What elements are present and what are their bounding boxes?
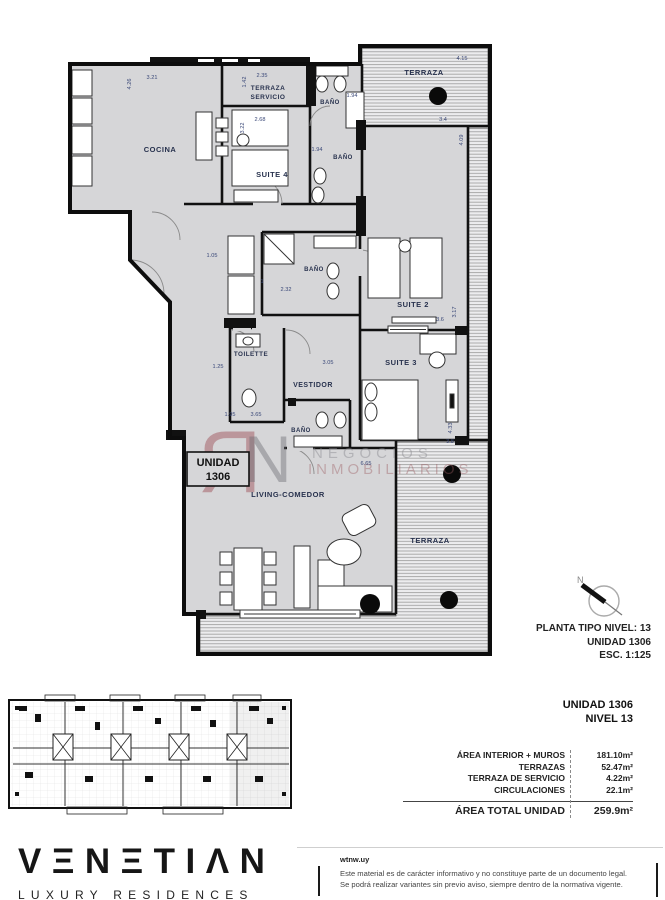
brochure-page: Я N NEGOCIOS INMOBILIARIOS COCINA TERRAZ…	[0, 0, 665, 900]
dimension-label: 2.35	[257, 73, 268, 79]
footer-bar-right	[656, 863, 658, 897]
room-label-cocina: COCINA	[144, 145, 177, 154]
dimension-label: 3.4	[439, 117, 447, 123]
area-row-value: 4.22m²	[577, 773, 633, 785]
dimension-label: 4.26	[127, 79, 133, 90]
area-info-block: UNIDAD 1306 NIVEL 13 ÁREA INTERIOR + MUR…	[403, 698, 633, 818]
footer-divider-line	[297, 847, 663, 848]
dimension-label: 4.09	[459, 135, 465, 146]
dimension-label: 4.15	[457, 56, 468, 62]
total-area-row: ÁREA TOTAL UNIDAD 259.9m²	[403, 801, 633, 818]
dimension-label: 1.05	[207, 253, 218, 259]
dimension-label: 3.65	[251, 412, 262, 418]
dimension-label: 2.68	[255, 117, 266, 123]
room-label-terraza-servicio-1: TERRAZA	[251, 85, 286, 92]
area-row-label: TERRAZA DE SERVICIO	[403, 773, 577, 785]
dimension-label: 3.6	[436, 317, 444, 323]
compass-icon: N	[577, 575, 622, 616]
key-plan	[5, 692, 295, 820]
room-label-suite3: SUITE 3	[385, 358, 417, 367]
dimension-label: 3.8	[446, 439, 454, 445]
info-level: NIVEL 13	[403, 712, 633, 726]
dimension-label: 4.33	[448, 423, 454, 434]
caption-line1: PLANTA TIPO NIVEL: 13	[431, 622, 651, 636]
room-label-suite4: SUITE 4	[256, 170, 288, 179]
room-label-bano-living: BAÑO	[291, 427, 311, 434]
area-row-label: CIRCULACIONES	[403, 785, 577, 797]
unit-box-line2: 1306	[206, 471, 230, 483]
dimension-label: 1.94	[347, 93, 358, 99]
room-label-suite2: SUITE 2	[397, 300, 429, 309]
caption-line2: UNIDAD 1306	[431, 636, 651, 650]
dimension-label: 6.65	[361, 461, 372, 467]
brand-logo-wordmark: VΞNΞTIΛN	[18, 842, 288, 882]
watermark-line1: NEGOCIOS	[312, 445, 433, 462]
dimension-label: 2.32	[281, 287, 292, 293]
table-row: ÁREA INTERIOR + MUROS 181.10m²	[403, 750, 633, 762]
table-row: CIRCULACIONES 22.1m²	[403, 785, 633, 797]
brand-logo-subtitle: LUXURY RESIDENCES	[18, 888, 288, 900]
area-row-label: TERRAZAS	[403, 762, 577, 774]
total-area-value: 259.9m²	[577, 806, 633, 818]
terrace-top-hatch	[362, 48, 488, 126]
dimension-label: 3.17	[452, 307, 458, 318]
table-row: TERRAZAS 52.47m²	[403, 762, 633, 774]
room-label-bano-mid: BAÑO	[333, 154, 353, 161]
dimension-label: 1.94	[312, 147, 323, 153]
room-label-vestidor: VESTIDOR	[293, 382, 333, 389]
room-label-bano-hall: BAÑO	[304, 266, 324, 273]
caption-line3: ESC. 1:125	[431, 649, 651, 663]
info-unit: UNIDAD 1306	[403, 698, 633, 712]
compass-n-label: N	[577, 575, 584, 585]
room-label-terraza-right: TERRAZA	[410, 536, 449, 545]
footer-bar-left	[318, 866, 320, 896]
watermark-monogram-n: N	[244, 422, 292, 496]
area-row-label: ÁREA INTERIOR + MUROS	[403, 750, 577, 762]
watermark-line2: INMOBILIARIOS	[308, 461, 473, 478]
main-floorplan: Я N NEGOCIOS INMOBILIARIOS COCINA TERRAZ…	[0, 0, 665, 680]
dimension-label: 1.25	[213, 364, 224, 370]
room-label-living: LIVING-COMEDOR	[251, 490, 325, 499]
plan-caption: PLANTA TIPO NIVEL: 13 UNIDAD 1306 ESC. 1…	[431, 622, 651, 663]
area-row-value: 181.10m²	[577, 750, 633, 762]
disclaimer-line2: Se podrá realizar variantes sin previo a…	[340, 879, 650, 890]
dimension-label: 1.95	[225, 412, 236, 418]
disclaimer-block: wtnw.uy Este material es de carácter inf…	[340, 855, 650, 890]
disclaimer-line1: Este material es de carácter informativo…	[340, 868, 650, 879]
table-row: TERRAZA DE SERVICIO 4.22m²	[403, 773, 633, 785]
room-label-toilette: TOILETTE	[234, 351, 268, 358]
brand-logo: VΞNΞTIΛN LUXURY RESIDENCES	[18, 842, 288, 900]
dimension-label: 3.22	[240, 123, 246, 134]
room-label-terraza-servicio-2: SERVICIO	[251, 94, 286, 101]
unit-number-box: UNIDAD 1306	[187, 452, 249, 486]
room-label-bano-top: BAÑO	[320, 99, 340, 106]
dimension-label: 3.05	[323, 360, 334, 366]
total-area-label: ÁREA TOTAL UNIDAD	[403, 806, 577, 818]
dimension-label: 1.42	[242, 77, 248, 88]
area-table: ÁREA INTERIOR + MUROS 181.10m² TERRAZAS …	[403, 750, 633, 818]
terrace-side-strip-hatch	[468, 128, 488, 440]
room-label-terraza-top: TERRAZA	[404, 68, 443, 77]
area-row-value: 22.1m²	[577, 785, 633, 797]
unit-box-line1: UNIDAD	[197, 457, 240, 469]
dimension-label: 1	[260, 279, 263, 285]
dimension-label: 3.21	[147, 75, 158, 81]
area-row-value: 52.47m²	[577, 762, 633, 774]
website-text: wtnw.uy	[340, 855, 650, 864]
